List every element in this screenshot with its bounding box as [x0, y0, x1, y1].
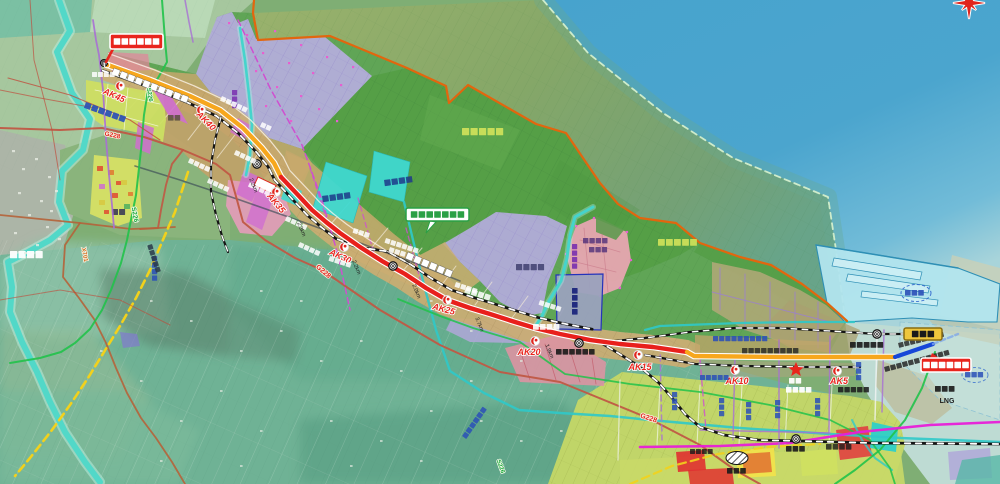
svg-text:LNG: LNG	[940, 398, 955, 405]
svg-text:AK5: AK5	[829, 376, 849, 386]
svg-text:AK20: AK20	[516, 347, 540, 357]
svg-text:AK15: AK15	[627, 362, 652, 372]
